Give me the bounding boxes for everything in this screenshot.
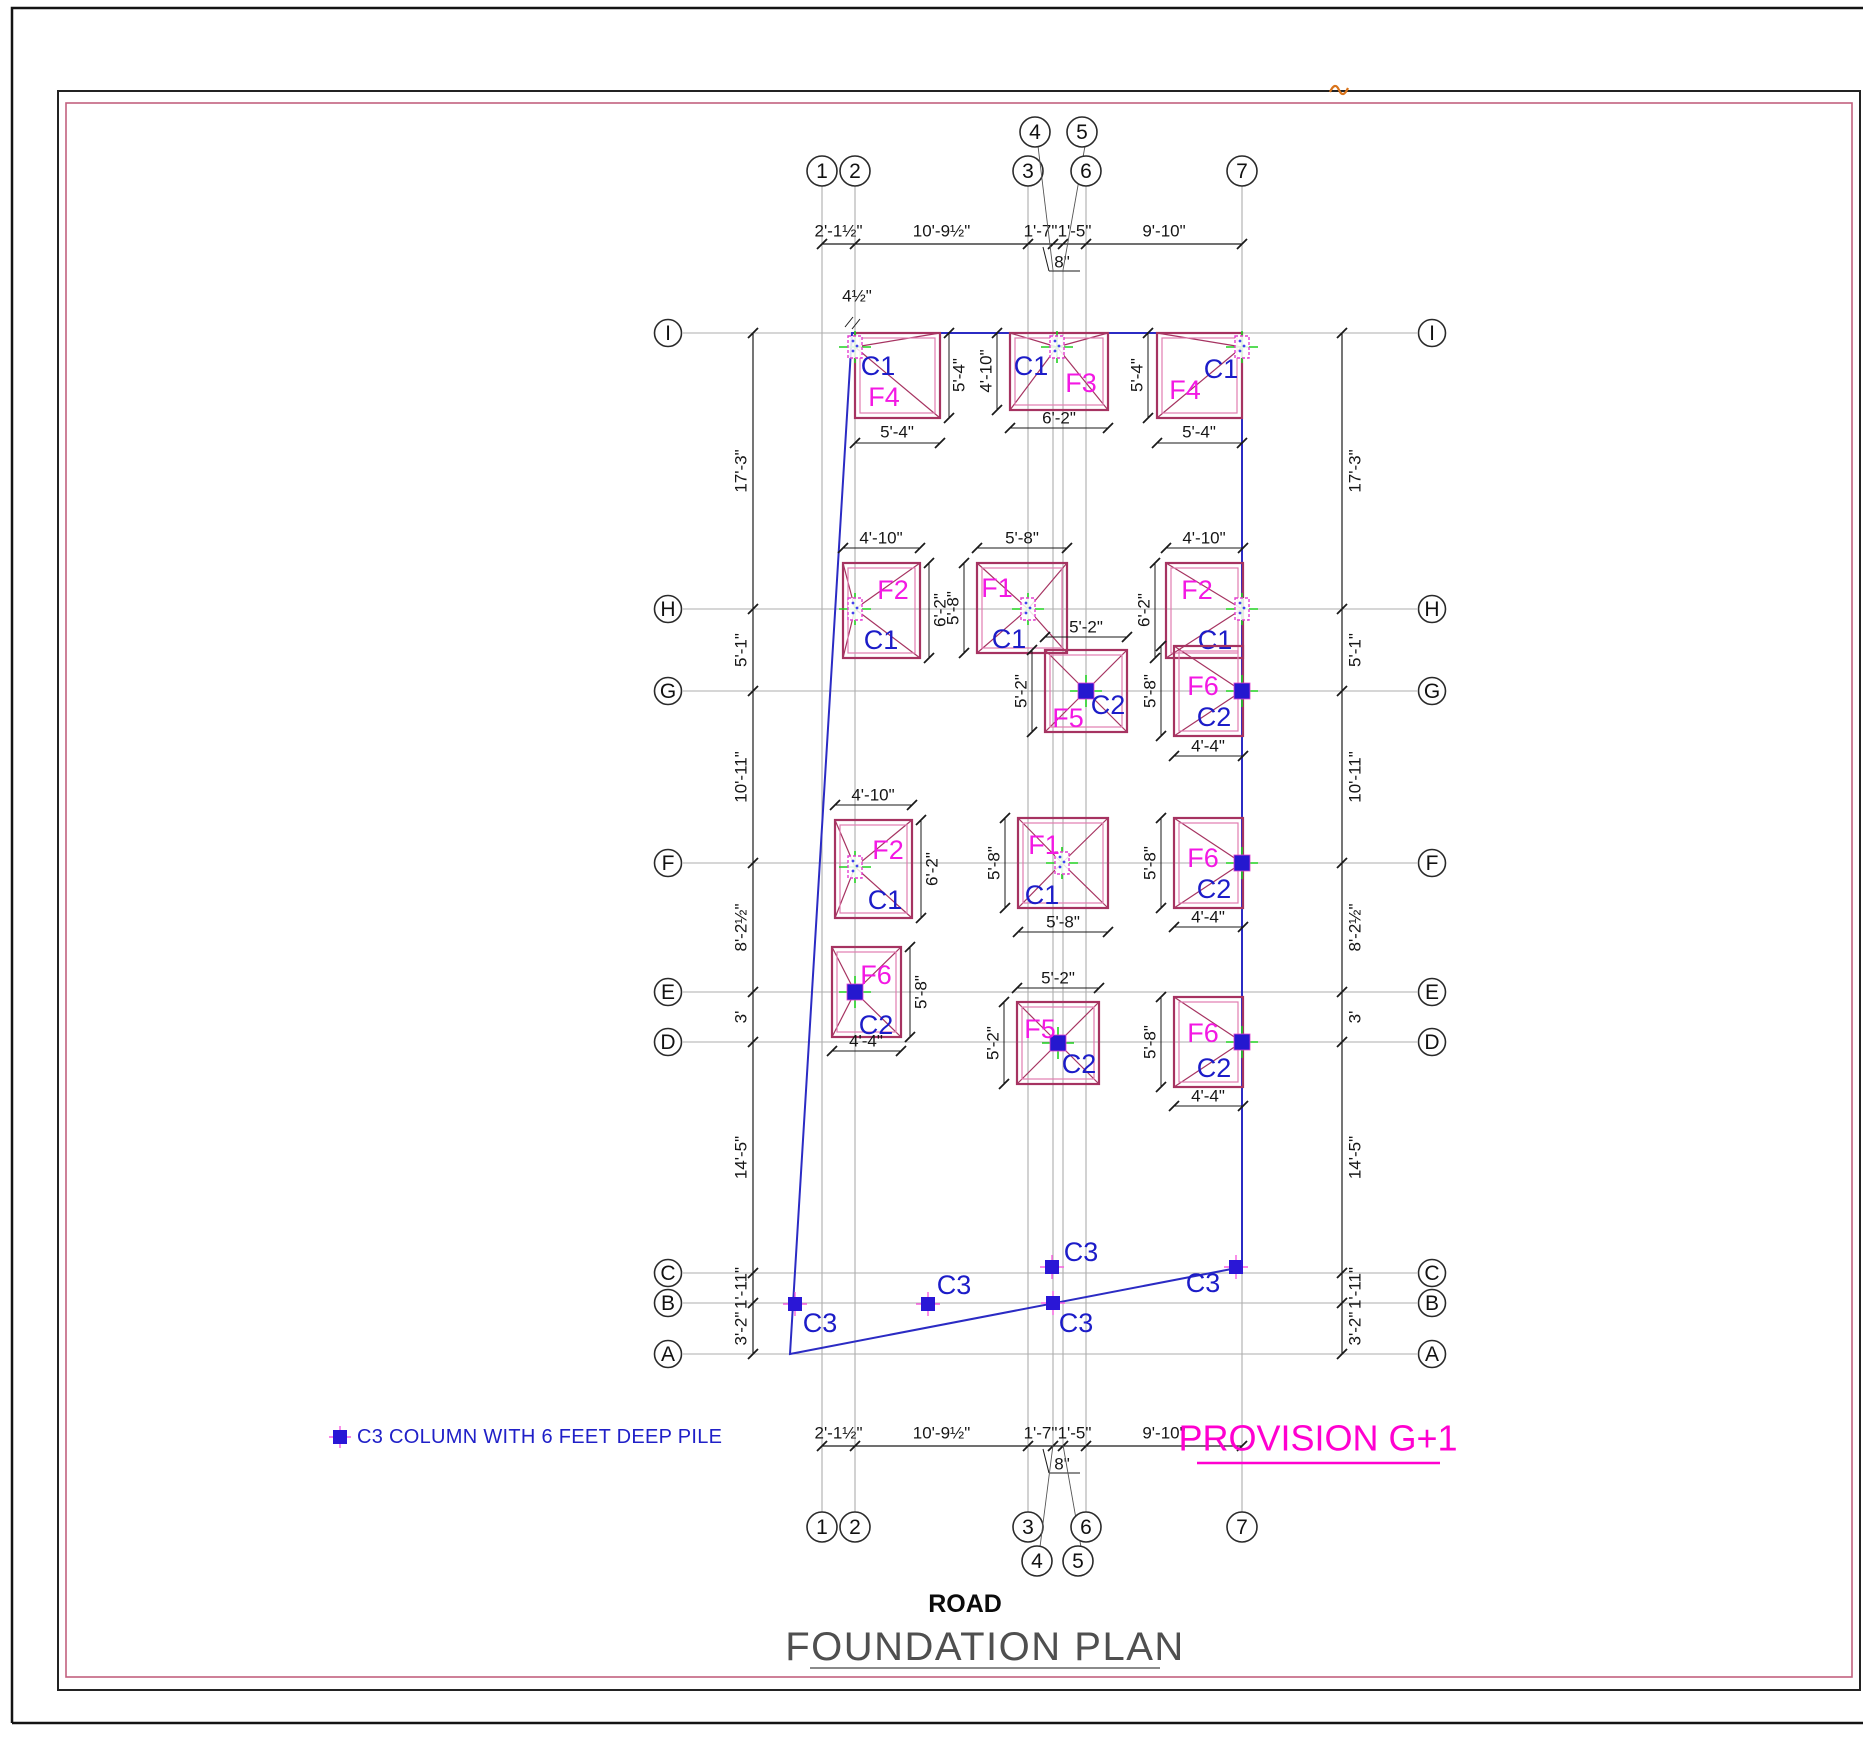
rebar-dot — [852, 340, 855, 343]
bubble-text: 6 — [1080, 1516, 1092, 1539]
bubble-text: 2 — [849, 160, 861, 183]
bubble-text: H — [660, 598, 675, 621]
c3-column-1: C3 — [916, 1270, 971, 1316]
bubble-text: 7 — [1236, 1516, 1248, 1539]
column-marker-c2 — [1234, 1034, 1250, 1050]
dim-text: 5'-1" — [1346, 633, 1365, 667]
bubble-text: G — [660, 680, 676, 703]
dim-text: 10'-9½" — [913, 1424, 970, 1443]
column-label-C1: C1 — [1025, 880, 1060, 910]
grid-bubble-3-top: 3 — [1013, 156, 1043, 186]
grid-bubble-E-right: E — [1419, 979, 1446, 1006]
dim-text: 1'-11" — [1346, 1267, 1365, 1309]
dim-text: 10'-11" — [732, 751, 751, 803]
generated-drawing: F4C15'-4"5'-4"F3C14'-10"6'-2"F4C15'-4"5'… — [655, 117, 1446, 1576]
rebar-dot — [1239, 602, 1242, 605]
dim-text: 5'-8" — [912, 975, 931, 1009]
column-marker-c2 — [1234, 683, 1250, 699]
dim-text: 5'-2" — [1069, 618, 1103, 637]
footing-label-F3: F3 — [1065, 368, 1097, 398]
grid-bubble-H-right: H — [1419, 596, 1446, 623]
rebar-dot — [856, 865, 859, 868]
grid-bubble-2-top: 2 — [840, 156, 870, 186]
rebar-dot — [856, 607, 859, 610]
bubble-leader — [1040, 1445, 1053, 1547]
grid-bubble-3-bottom: 3 — [1013, 1512, 1043, 1542]
dim-text: 5'-4" — [1128, 358, 1147, 392]
rebar-dot — [1239, 340, 1242, 343]
dim-text: 9'-10" — [1142, 222, 1185, 241]
dim-text: 5'-2" — [1012, 674, 1031, 708]
footing-label-F5: F5 — [1052, 703, 1084, 733]
dim-text: 8'-2½" — [1346, 903, 1365, 951]
dim-text: 1'-7" — [1024, 1424, 1058, 1443]
bubble-text: 5 — [1072, 1550, 1084, 1573]
grid-bubble-H-left: H — [655, 596, 682, 623]
dim-text: 5'-8" — [1141, 674, 1160, 708]
c3-label: C3 — [1186, 1268, 1221, 1298]
dim-text: 5'-8" — [1141, 1025, 1160, 1059]
grid-bubble-C-right: C — [1419, 1260, 1446, 1287]
grid-bubble-B-left: B — [655, 1290, 682, 1317]
column-label-C1: C1 — [864, 625, 899, 655]
grid-bubble-I-right: I — [1419, 320, 1446, 347]
dim-text: 1'-5" — [1058, 1424, 1092, 1443]
bubble-text: B — [661, 1292, 675, 1315]
grid-bubble-D-left: D — [655, 1029, 682, 1056]
c3-square — [921, 1297, 935, 1311]
bubble-text: 3 — [1022, 1516, 1034, 1539]
bubble-text: D — [660, 1031, 675, 1054]
dim-text: 4'-10" — [1182, 529, 1225, 548]
rebar-dot — [1243, 345, 1246, 348]
dim-text: 5'-8" — [1046, 913, 1080, 932]
rebar-dot — [856, 345, 859, 348]
dim-text: 1'-5" — [1058, 222, 1092, 241]
grid-bubble-1-top: 1 — [807, 156, 837, 186]
footing-F3-1: F3C14'-10"6'-2" — [977, 328, 1114, 433]
rebar-dot — [1025, 602, 1028, 605]
footing-F2-8: F2C14'-10"6'-2" — [830, 786, 942, 924]
dim-text: 2'-1½" — [814, 222, 862, 241]
annotation-leader — [845, 317, 853, 327]
c3-label: C3 — [1064, 1237, 1099, 1267]
dim-text: 5'-8" — [985, 846, 1004, 880]
dim-text: 1'-11" — [732, 1267, 751, 1309]
footing-F5-6: F5C25'-2"5'-2" — [1012, 618, 1133, 738]
column-label-C2: C2 — [1197, 874, 1232, 904]
footing-F6-11: F6C25'-8"4'-4" — [827, 942, 931, 1056]
c3-columns: C3C3C3C3C3 — [783, 1237, 1248, 1338]
footing-diagonal — [1157, 333, 1242, 347]
column-label-C1: C1 — [868, 885, 903, 915]
footing-label-F2: F2 — [872, 835, 904, 865]
grid-bubble-4-top: 4 — [1020, 117, 1050, 147]
bubble-text: A — [661, 1343, 675, 1366]
grid-bubble-B-right: B — [1419, 1290, 1446, 1317]
footing-F1-9: F1C15'-8"5'-8" — [985, 813, 1114, 937]
footings: F4C15'-4"5'-4"F3C14'-10"6'-2"F4C15'-4"5'… — [827, 328, 1258, 1111]
column-label-C1: C1 — [1014, 351, 1049, 381]
bubble-text: 4 — [1031, 1550, 1043, 1573]
grid-bubble-F-left: F — [655, 850, 682, 877]
c3-label: C3 — [1059, 1308, 1094, 1338]
rebar-dot — [1054, 350, 1057, 353]
bubble-text: 4 — [1029, 121, 1041, 144]
bubble-text: 6 — [1080, 160, 1092, 183]
dim-text: 5'-2" — [1041, 969, 1075, 988]
grid-bubble-6-top: 6 — [1071, 156, 1101, 186]
dim-text: 5'-8" — [1005, 529, 1039, 548]
rebar-dot — [852, 350, 855, 353]
footing-F4-0: F4C15'-4"5'-4" — [839, 328, 969, 448]
annotation-text: 4½" — [842, 287, 872, 306]
grid-bubble-1-bottom: 1 — [807, 1512, 837, 1542]
rebar-dot — [1025, 612, 1028, 615]
c3-square — [1229, 1260, 1243, 1274]
dim-text: 3' — [732, 1011, 751, 1024]
bubble-text: E — [1425, 981, 1439, 1004]
column-marker-c2 — [1234, 855, 1250, 871]
grid-bubble-A-right: A — [1419, 1341, 1446, 1368]
dim-text: 17'-3" — [1346, 449, 1365, 492]
column-label-C1: C1 — [992, 624, 1027, 654]
grid-bubble-G-left: G — [655, 678, 682, 705]
rebar-dot — [1059, 866, 1062, 869]
rebar-dot — [852, 860, 855, 863]
road-label: ROAD — [928, 1590, 1002, 1618]
bubble-text: 7 — [1236, 160, 1248, 183]
column-label-C2: C2 — [1197, 1053, 1232, 1083]
dim-text: 4'-10" — [851, 786, 894, 805]
column-marker-c1 — [848, 856, 862, 878]
bubble-text: E — [661, 981, 675, 1004]
bubble-text: 2 — [849, 1516, 861, 1539]
rebar-dot — [1239, 612, 1242, 615]
c3-label: C3 — [803, 1308, 838, 1338]
grid-bubble-4-bottom: 4 — [1022, 1546, 1052, 1576]
footing-label-F4: F4 — [1169, 375, 1201, 405]
drawing-title: FOUNDATION PLAN — [785, 1625, 1185, 1669]
dim-text: 4'-4" — [1191, 737, 1225, 756]
provision-text: PROVISION G+1 — [1178, 1418, 1457, 1459]
dim-text: 3' — [1346, 1011, 1365, 1024]
dim-text: 6'-2" — [1042, 409, 1076, 428]
dim-text: 5'-1" — [732, 633, 751, 667]
bubble-leader — [1038, 146, 1053, 270]
bubble-text: 1 — [816, 160, 828, 183]
dim-text: 4'-4" — [849, 1032, 883, 1051]
dim-text: 4'-4" — [1191, 908, 1225, 927]
dim-text: 5'-4" — [880, 423, 914, 442]
footing-F2-5: F2C14'-10"6'-2" — [1135, 529, 1259, 664]
column-marker-c1 — [1050, 336, 1064, 358]
dim-text: 4'-10" — [977, 349, 996, 392]
bubble-text: H — [1424, 598, 1439, 621]
column-label-C1: C1 — [1204, 354, 1239, 384]
dim-text: 4'-10" — [859, 529, 902, 548]
dim-text: 4'-4" — [1191, 1087, 1225, 1106]
legend: C3 COLUMN WITH 6 FEET DEEP PILE — [329, 1426, 722, 1448]
dim-text: 5'-4" — [950, 358, 969, 392]
dim-text: 5'-8" — [1141, 846, 1160, 880]
footing-F4-2: F4C15'-4"5'-4" — [1128, 328, 1259, 448]
dim-text: 5'-2" — [984, 1026, 1003, 1060]
footing-label-F1: F1 — [1028, 830, 1060, 860]
grid-bubble-7-bottom: 7 — [1227, 1512, 1257, 1542]
rebar-dot — [1243, 607, 1246, 610]
footing-label-F4: F4 — [868, 382, 900, 412]
bubble-text: F — [662, 852, 675, 875]
bubble-text: B — [1425, 1292, 1439, 1315]
dim-text: 5'-4" — [1182, 423, 1216, 442]
grid-bubble-6-bottom: 6 — [1071, 1512, 1101, 1542]
annotation-leader — [852, 319, 860, 329]
grid-bubble-D-right: D — [1419, 1029, 1446, 1056]
footing-diagonal — [855, 333, 940, 347]
bubble-text: 1 — [816, 1516, 828, 1539]
rebar-dot — [852, 870, 855, 873]
sheet-frame-black — [58, 91, 1860, 1690]
foundation-plan-page: F4C15'-4"5'-4"F3C14'-10"6'-2"F4C15'-4"5'… — [0, 0, 1863, 1755]
dim-text: 6'-2" — [1135, 593, 1154, 627]
bubble-text: I — [1429, 322, 1435, 345]
c3-square — [788, 1297, 802, 1311]
grid-bubble-7-top: 7 — [1227, 156, 1257, 186]
bubble-text: F — [1426, 852, 1439, 875]
bubble-text: G — [1424, 680, 1440, 703]
c3-square — [1045, 1260, 1059, 1274]
footing-F6-10: F6C25'-8"4'-4" — [1141, 813, 1259, 932]
grid-bubble-C-left: C — [655, 1260, 682, 1287]
c3-label: C3 — [937, 1270, 972, 1300]
annotation-text: 8" — [1054, 253, 1070, 272]
grid-bubble-2-bottom: 2 — [840, 1512, 870, 1542]
footing-label-F6: F6 — [1187, 843, 1219, 873]
rebar-dot — [1054, 340, 1057, 343]
footing-label-F5: F5 — [1024, 1014, 1056, 1044]
c3-column-4: C3 — [1186, 1255, 1248, 1298]
dim-text: 3'-2" — [732, 1312, 751, 1346]
column-label-C2: C2 — [1091, 690, 1126, 720]
bubble-text: A — [1425, 1343, 1439, 1366]
column-label-C2: C2 — [1062, 1049, 1097, 1079]
dim-text: 14'-5" — [1346, 1136, 1365, 1179]
bubble-text: D — [1424, 1031, 1439, 1054]
grid-bubble-A-left: A — [655, 1341, 682, 1368]
footing-label-F6: F6 — [1187, 671, 1219, 701]
dim-text: 2'-1½" — [814, 1424, 862, 1443]
footing-label-F2: F2 — [1181, 575, 1213, 605]
annotation-leader — [1043, 247, 1049, 271]
bubble-text: 5 — [1076, 121, 1088, 144]
dim-text: 3'-2" — [1346, 1312, 1365, 1346]
rebar-dot — [1239, 350, 1242, 353]
bubble-text: 3 — [1022, 160, 1034, 183]
dim-text: 10'-11" — [1346, 751, 1365, 803]
grid-bubble-E-left: E — [655, 979, 682, 1006]
foundation-plan-drawing: F4C15'-4"5'-4"F3C14'-10"6'-2"F4C15'-4"5'… — [0, 0, 1863, 1755]
grid-bubble-I-left: I — [655, 320, 682, 347]
footing-label-F6: F6 — [1187, 1018, 1219, 1048]
grid-bubble-5-bottom: 5 — [1063, 1546, 1093, 1576]
column-marker-c1 — [1235, 598, 1249, 620]
annotation-leader — [1043, 1449, 1049, 1473]
dim-text: 1'-7" — [1024, 222, 1058, 241]
column-label-C2: C2 — [1197, 702, 1232, 732]
rebar-dot — [1058, 345, 1061, 348]
footing-F6-13: F6C25'-8"4'-4" — [1141, 992, 1259, 1111]
column-marker-c1 — [1021, 598, 1035, 620]
rebar-dot — [1063, 861, 1066, 864]
legend-label: C3 COLUMN WITH 6 FEET DEEP PILE — [357, 1426, 722, 1448]
column-label-C1: C1 — [861, 351, 896, 381]
footing-label-F2: F2 — [877, 575, 909, 605]
dim-text: 10'-9½" — [913, 222, 970, 241]
dim-text: 5'-8" — [944, 591, 963, 625]
grid-bubble-5-top: 5 — [1067, 117, 1097, 147]
rebar-dot — [852, 612, 855, 615]
dim-text: 17'-3" — [732, 449, 751, 492]
column-marker-c1 — [848, 598, 862, 620]
footing-label-F6: F6 — [860, 960, 892, 990]
dim-text: 6'-2" — [923, 852, 942, 886]
provision-note: PROVISION G+1 — [1178, 1418, 1457, 1464]
grid-bubble-F-right: F — [1419, 850, 1446, 877]
bubble-text: C — [660, 1262, 675, 1285]
rebar-dot — [1029, 607, 1032, 610]
grid-bubble-G-right: G — [1419, 678, 1446, 705]
dim-text: 8'-2½" — [732, 903, 751, 951]
title-block: ROAD FOUNDATION PLAN — [785, 1590, 1185, 1669]
footing-label-F1: F1 — [981, 573, 1013, 603]
c3-pile-legend-icon — [329, 1426, 351, 1448]
rebar-dot — [852, 602, 855, 605]
bubble-text: C — [1424, 1262, 1439, 1285]
dim-text: 14'-5" — [732, 1136, 751, 1179]
bubble-text: I — [665, 322, 671, 345]
